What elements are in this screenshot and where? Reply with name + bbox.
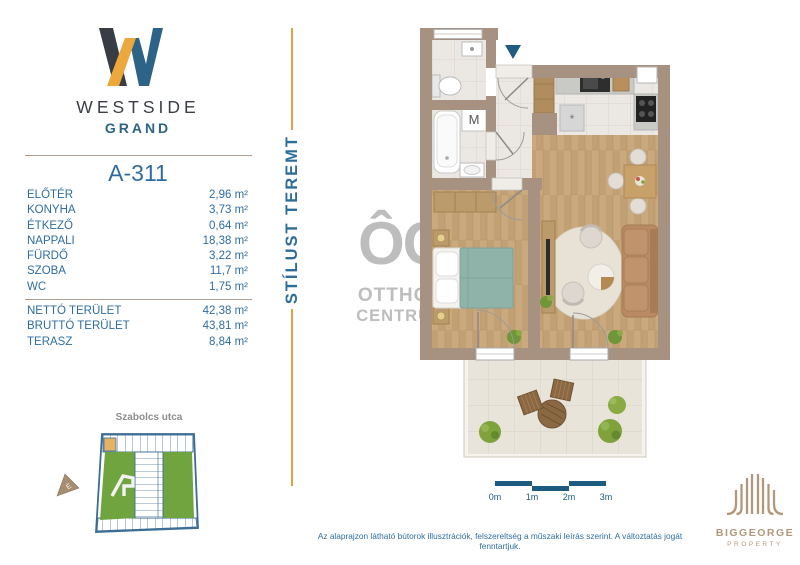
entry-threshold (496, 65, 532, 78)
scale-label: 2m (559, 492, 579, 502)
room-row: ELŐTÉR2,96 m² (27, 188, 248, 203)
wardrobe-icon (434, 192, 496, 212)
room-row: WC1,75 m² (27, 280, 248, 295)
room-hallway (496, 65, 532, 178)
highlighted-unit (104, 438, 116, 451)
room-row: NAPPALI18,38 m² (27, 234, 248, 249)
tv-icon (546, 239, 550, 295)
room-list: ELŐTÉR2,96 m² KONYHA3,73 m² ÉTKEZŐ0,64 m… (27, 188, 248, 295)
scale-bar: 0m 1m 2m 3m (483, 479, 623, 507)
scale-label: 0m (485, 492, 505, 502)
developer-division: PROPERTY (712, 541, 798, 548)
lamp-icon (437, 234, 445, 242)
compass-north-icon: É (55, 472, 85, 502)
window-icon (637, 67, 657, 83)
unit-band-center (135, 452, 163, 518)
brand-name: WESTSIDE (27, 97, 249, 118)
divider-top (25, 155, 252, 156)
dining-chair-icon (630, 198, 646, 214)
room-row: KONYHA3,73 m² (27, 203, 248, 218)
armchair-icon (580, 226, 602, 248)
bush-icon (608, 396, 626, 414)
lamp-icon (437, 312, 445, 320)
courtyard-right (163, 452, 194, 518)
unit-id: A-311 (27, 160, 249, 187)
entrance-arrow-icon (505, 45, 521, 59)
washing-machine-label: M (469, 112, 480, 127)
cooktop-icon (636, 96, 656, 122)
divider-totals (25, 299, 252, 300)
room-row: FÜRDŐ3,22 m² (27, 249, 248, 264)
room-row: SZOBA11,7 m² (27, 264, 248, 279)
total-row: NETTÓ TERÜLET42,38 m² (27, 304, 248, 319)
scale-label: 1m (522, 492, 542, 502)
biggeorge-building-icon (712, 470, 798, 520)
room-row: ÉTKEZŐ0,64 m² (27, 219, 248, 234)
tagline-block: STÍLUST TEREMT (283, 28, 301, 486)
svg-text:*: * (570, 112, 575, 126)
armchair-icon (562, 282, 584, 304)
floor-plan: M * (410, 15, 700, 465)
unit-band-top (103, 435, 193, 452)
tagline-text: STÍLUST TEREMT (283, 135, 302, 304)
terrace-chair-icon (550, 379, 573, 401)
scale-label: 3m (596, 492, 616, 502)
total-row: BRUTTÓ TERÜLET43,81 m² (27, 319, 248, 334)
developer-name: BIGGEORGE (712, 527, 798, 539)
developer-logo: BIGGEORGE PROPERTY (712, 470, 798, 548)
bush-icon (479, 421, 501, 443)
dining-chair-icon (630, 149, 646, 165)
terrace (464, 358, 646, 457)
street-label: Szabolcs utca (88, 412, 210, 423)
gold-line (291, 28, 293, 130)
bush-icon (598, 419, 622, 443)
site-map (88, 426, 210, 544)
dining-chair-icon (608, 173, 624, 189)
terrace-table-icon (538, 400, 566, 428)
gold-line (291, 309, 293, 486)
brand-subname: GRAND (27, 120, 249, 136)
brochure-page: WESTSIDE GRAND A-311 ELŐTÉR2,96 m² KONYH… (0, 0, 800, 565)
totals-list: NETTÓ TERÜLET42,38 m² BRUTTÓ TERÜLET43,8… (27, 304, 248, 350)
disclaimer-text: Az alaprajzon látható bútorok illusztrác… (300, 531, 700, 551)
westside-logo-icon (93, 26, 163, 88)
bed-icon (433, 248, 513, 308)
total-row: TERASZ8,84 m² (27, 335, 248, 350)
